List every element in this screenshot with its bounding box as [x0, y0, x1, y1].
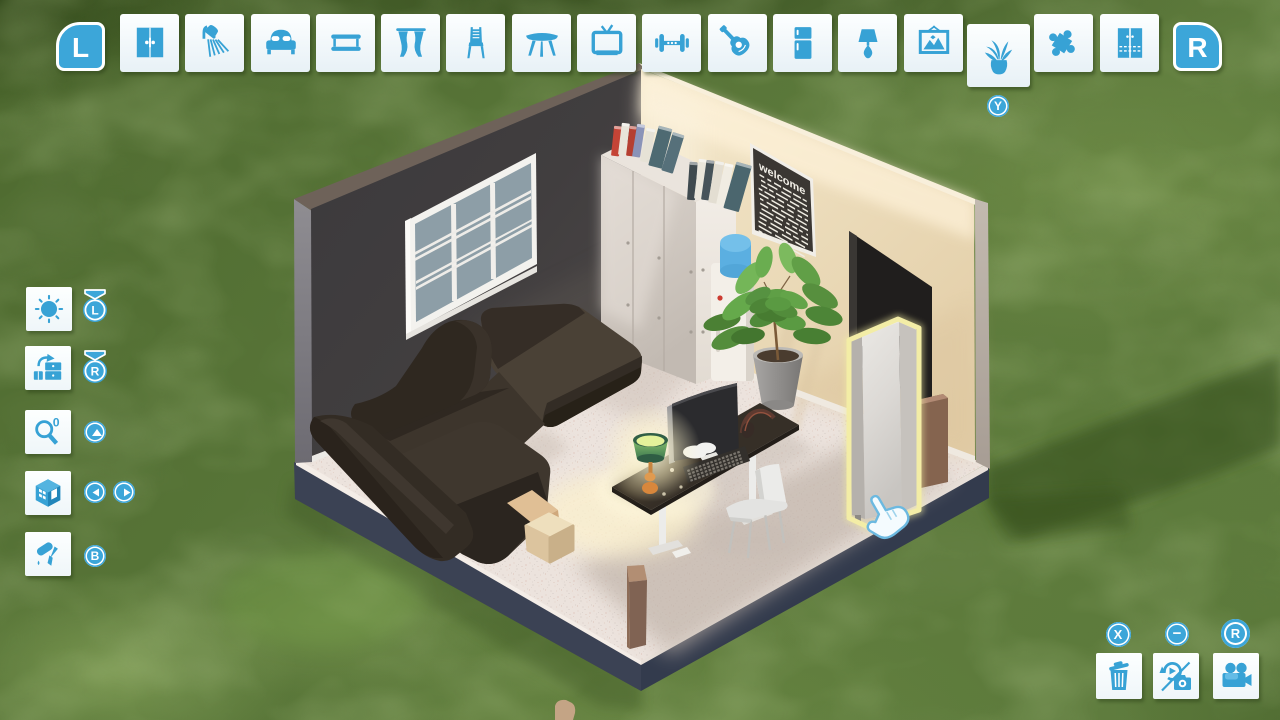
svg-text:L: L [91, 304, 98, 318]
svg-text:0: 0 [53, 415, 60, 429]
svg-text:R: R [91, 365, 100, 379]
